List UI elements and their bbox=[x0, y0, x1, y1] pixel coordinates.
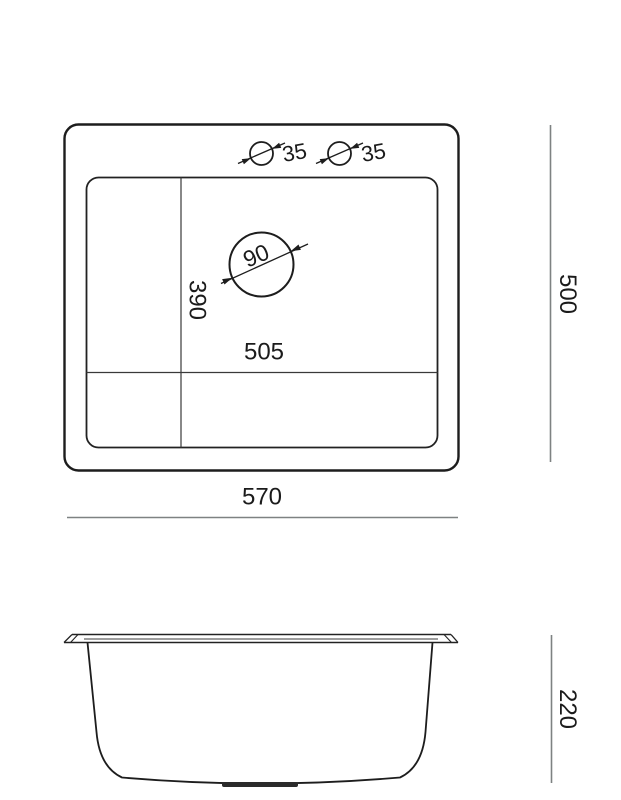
arrowhead-icon bbox=[242, 158, 251, 164]
arrowhead-icon bbox=[222, 278, 232, 285]
overall-width-dim-label: 570 bbox=[242, 484, 282, 511]
overall-depth-dimension: 500 bbox=[551, 125, 582, 462]
sink-drawing-page: 35 35 90 390 505 bbox=[0, 0, 621, 800]
overall-width-dimension: 570 bbox=[67, 484, 458, 518]
faucet-hole-right-dim-label: 35 bbox=[359, 138, 387, 167]
rim-right-inner-bevel bbox=[444, 635, 452, 643]
inner-width-dim-label: 505 bbox=[244, 339, 284, 366]
inner-depth-dim-label: 390 bbox=[184, 280, 211, 320]
rim-left-bevel bbox=[64, 635, 72, 643]
faucet-hole-right: 35 bbox=[316, 138, 388, 167]
faucet-hole-left: 35 bbox=[238, 138, 309, 167]
sink-drawing-svg: 35 35 90 390 505 bbox=[0, 0, 621, 800]
drain-stub bbox=[222, 782, 298, 787]
drain-hole: 90 bbox=[221, 233, 308, 297]
side-view: 220 bbox=[64, 635, 581, 788]
sink-rim bbox=[64, 635, 458, 643]
arrowhead-icon bbox=[291, 245, 301, 252]
basin-profile-outline bbox=[88, 643, 433, 784]
arrowhead-icon bbox=[320, 158, 329, 164]
faucet-hole-left-dim-label: 35 bbox=[280, 138, 308, 167]
drain-hole-dim-label: 90 bbox=[239, 239, 273, 273]
sink-inner-bowl-outline bbox=[87, 178, 438, 448]
rim-right-bevel bbox=[451, 635, 458, 643]
overall-height-dim-label: 220 bbox=[554, 689, 581, 729]
overall-depth-dim-label: 500 bbox=[554, 274, 581, 314]
top-view: 35 35 90 390 505 bbox=[65, 125, 582, 518]
arrowhead-icon bbox=[350, 143, 359, 149]
overall-height-dimension: 220 bbox=[552, 635, 582, 783]
